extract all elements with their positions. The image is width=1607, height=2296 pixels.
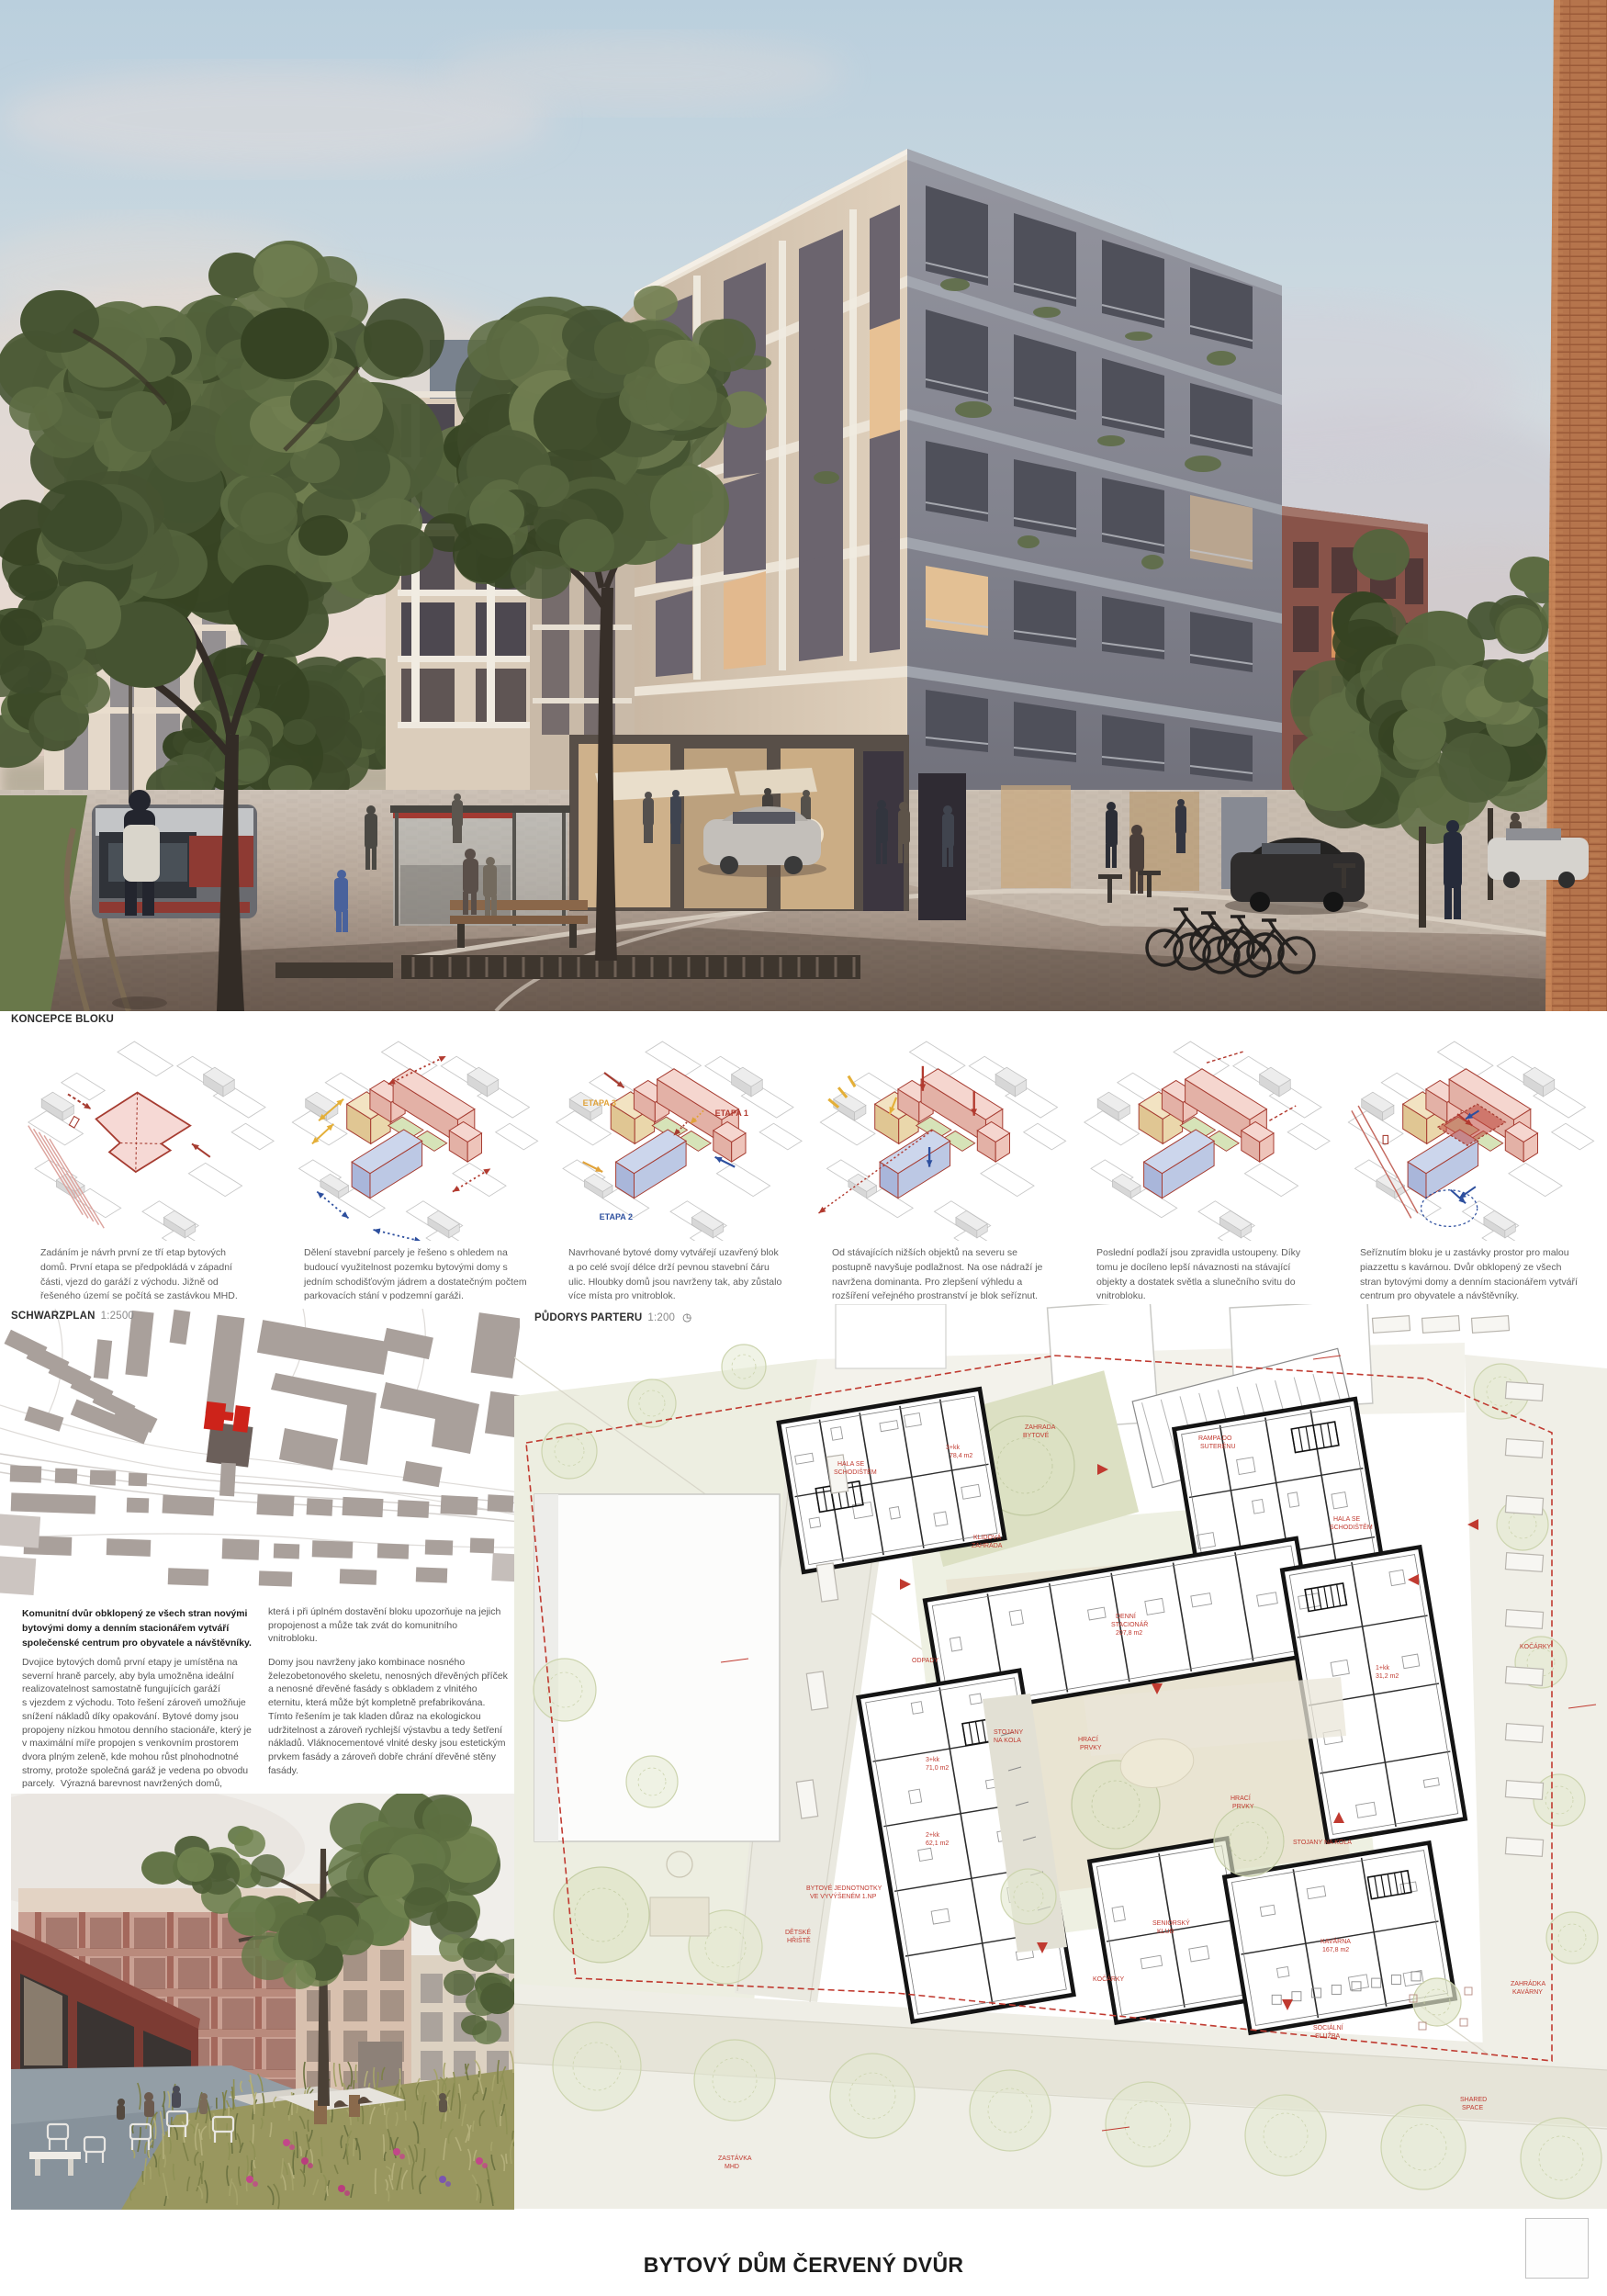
svg-text:DENNÍ: DENNÍ	[1116, 1612, 1136, 1620]
svg-text:KAVÁRNY: KAVÁRNY	[1512, 1987, 1543, 1996]
svg-text:SHARED: SHARED	[1460, 2097, 1487, 2103]
svg-text:KOČÁRKY: KOČÁRKY	[1520, 1642, 1552, 1650]
svg-text:1+kk: 1+kk	[1376, 1665, 1389, 1671]
svg-text:ZAHRADA: ZAHRADA	[972, 1543, 1003, 1549]
svg-text:KLUB: KLUB	[1157, 1929, 1174, 1935]
svg-text:SENIORSKÝ: SENIORSKÝ	[1152, 1919, 1190, 1927]
svg-text:MHD: MHD	[725, 2164, 739, 2170]
svg-text:207,8 m2: 207,8 m2	[1116, 1630, 1142, 1637]
svg-text:ETAPA 1: ETAPA 1	[715, 1109, 748, 1118]
svg-text:KAVÁRNA: KAVÁRNA	[1320, 1937, 1351, 1945]
svg-text:STACIONÁŘ: STACIONÁŘ	[1111, 1620, 1148, 1628]
svg-text:62,1 m2: 62,1 m2	[926, 1840, 949, 1847]
svg-text:31,2 m2: 31,2 m2	[1376, 1673, 1399, 1680]
svg-text:SUTERÉNU: SUTERÉNU	[1200, 1442, 1236, 1450]
svg-text:RAMPA DO: RAMPA DO	[1198, 1435, 1232, 1442]
svg-text:ZAHRÁDKA: ZAHRÁDKA	[1511, 1979, 1545, 1987]
svg-text:3+kk: 3+kk	[926, 1757, 939, 1763]
svg-text:ETAPA 2: ETAPA 2	[600, 1212, 633, 1221]
svg-text:KOČÁRKY: KOČÁRKY	[1093, 1975, 1125, 1983]
svg-text:STOJANY: STOJANY	[994, 1729, 1023, 1736]
svg-text:78,4 m2: 78,4 m2	[950, 1453, 972, 1459]
svg-text:SOCIÁLNÍ: SOCIÁLNÍ	[1313, 2023, 1343, 2032]
svg-text:HALA SE: HALA SE	[837, 1461, 865, 1468]
svg-text:SPACE: SPACE	[1462, 2105, 1484, 2111]
svg-text:BYTOVÉ JEDNOTNOTKY: BYTOVÉ JEDNOTNOTKY	[806, 1884, 882, 1892]
svg-text:3+kk: 3+kk	[946, 1445, 960, 1451]
svg-text:HŘIŠTĚ: HŘIŠTĚ	[787, 1936, 811, 1944]
svg-text:71,0 m2: 71,0 m2	[926, 1765, 949, 1772]
svg-text:ZAHRADA: ZAHRADA	[1025, 1424, 1056, 1431]
svg-text:ZASTÁVKA: ZASTÁVKA	[718, 2154, 752, 2162]
svg-text:167,8 m2: 167,8 m2	[1322, 1947, 1349, 1953]
svg-text:SCHODIŠTĚM: SCHODIŠTĚM	[834, 1468, 877, 1476]
svg-text:ODPADY: ODPADY	[912, 1658, 938, 1664]
svg-text:PRVKY: PRVKY	[1232, 1804, 1254, 1810]
svg-text:ETAPA 3: ETAPA 3	[583, 1098, 616, 1108]
svg-text:NA KOLA: NA KOLA	[994, 1738, 1021, 1744]
svg-text:KLIDOVÁ: KLIDOVÁ	[973, 1533, 1002, 1541]
svg-text:HRACÍ: HRACÍ	[1078, 1735, 1098, 1743]
svg-text:STOJANY NA KOLA: STOJANY NA KOLA	[1293, 1840, 1352, 1846]
svg-text:HRACÍ: HRACÍ	[1231, 1794, 1251, 1802]
svg-text:2+kk: 2+kk	[926, 1832, 939, 1839]
svg-text:SLUŽBA: SLUŽBA	[1315, 2032, 1341, 2040]
svg-text:BYTOVÉ: BYTOVÉ	[1023, 1431, 1050, 1439]
svg-text:VE VYVÝŠENÉM 1.NP: VE VYVÝŠENÉM 1.NP	[810, 1892, 877, 1900]
svg-text:PRVKY: PRVKY	[1080, 1745, 1102, 1751]
svg-text:DĚTSKÉ: DĚTSKÉ	[785, 1928, 811, 1936]
svg-text:SCHODIŠTĚM: SCHODIŠTĚM	[1330, 1523, 1373, 1531]
svg-text:HALA SE: HALA SE	[1333, 1516, 1361, 1523]
